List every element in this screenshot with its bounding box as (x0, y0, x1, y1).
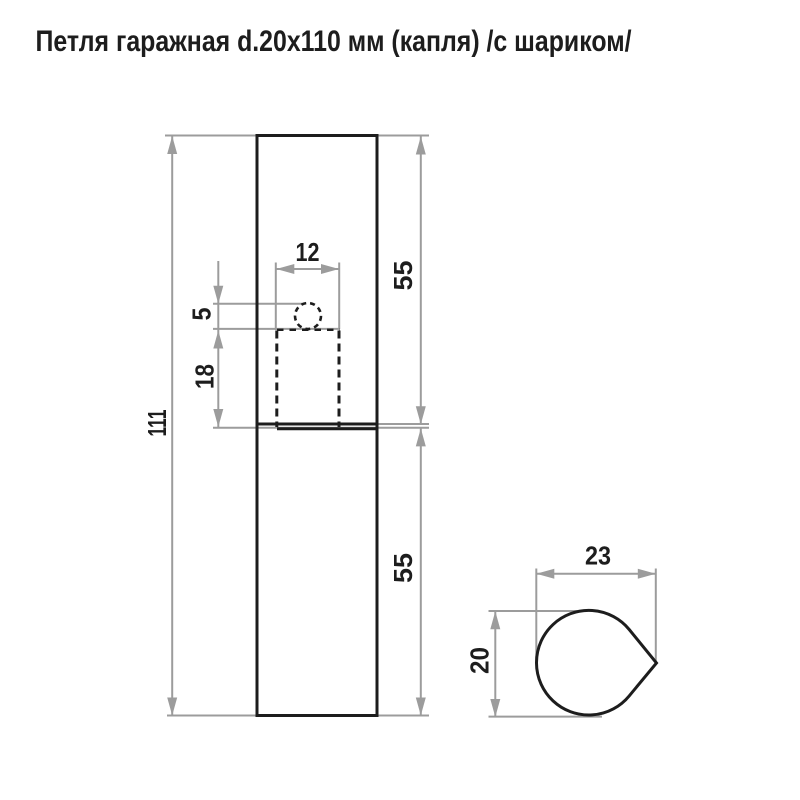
svg-text:Петля гаражная d.20x110 мм (ка: Петля гаражная d.20x110 мм (капля) /с ша… (36, 25, 633, 58)
svg-text:20: 20 (465, 647, 495, 674)
svg-text:12: 12 (296, 237, 320, 267)
svg-text:55: 55 (388, 553, 418, 583)
svg-text:111: 111 (142, 410, 172, 437)
svg-text:23: 23 (585, 541, 611, 571)
svg-text:5: 5 (187, 308, 217, 321)
svg-text:18: 18 (190, 364, 220, 389)
svg-text:55: 55 (388, 261, 418, 291)
